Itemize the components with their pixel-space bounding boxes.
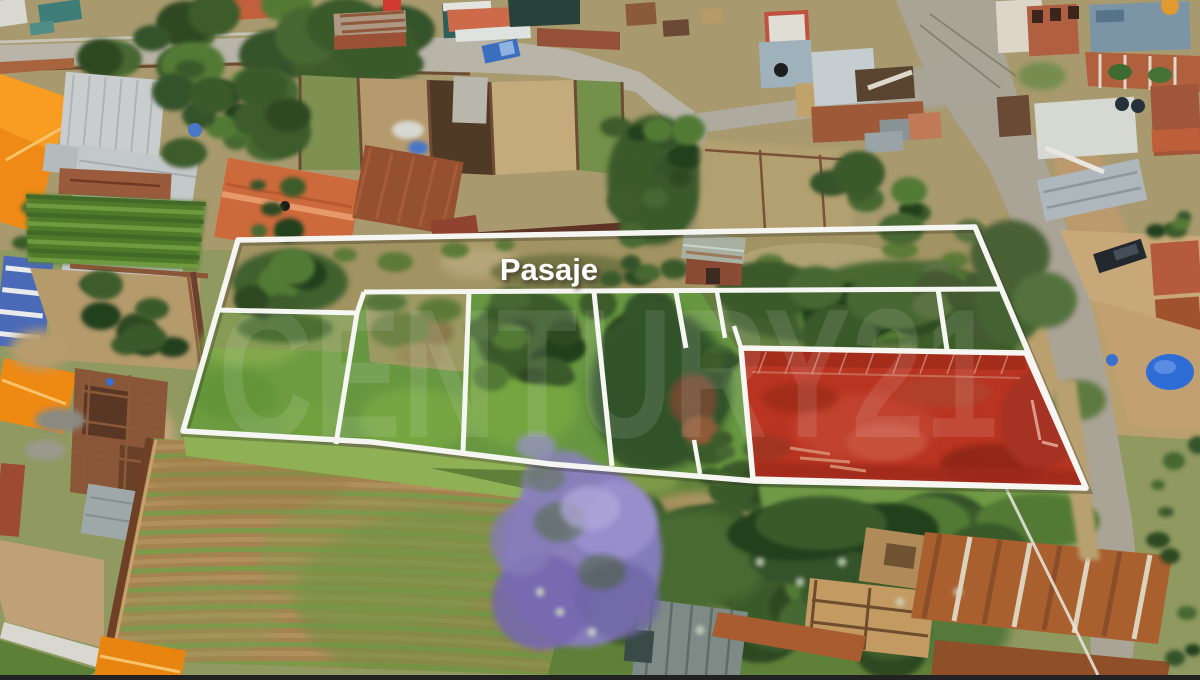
svg-text:CENTURY21: CENTURY21 bbox=[218, 270, 998, 476]
svg-text:Pasaje: Pasaje bbox=[500, 252, 598, 287]
